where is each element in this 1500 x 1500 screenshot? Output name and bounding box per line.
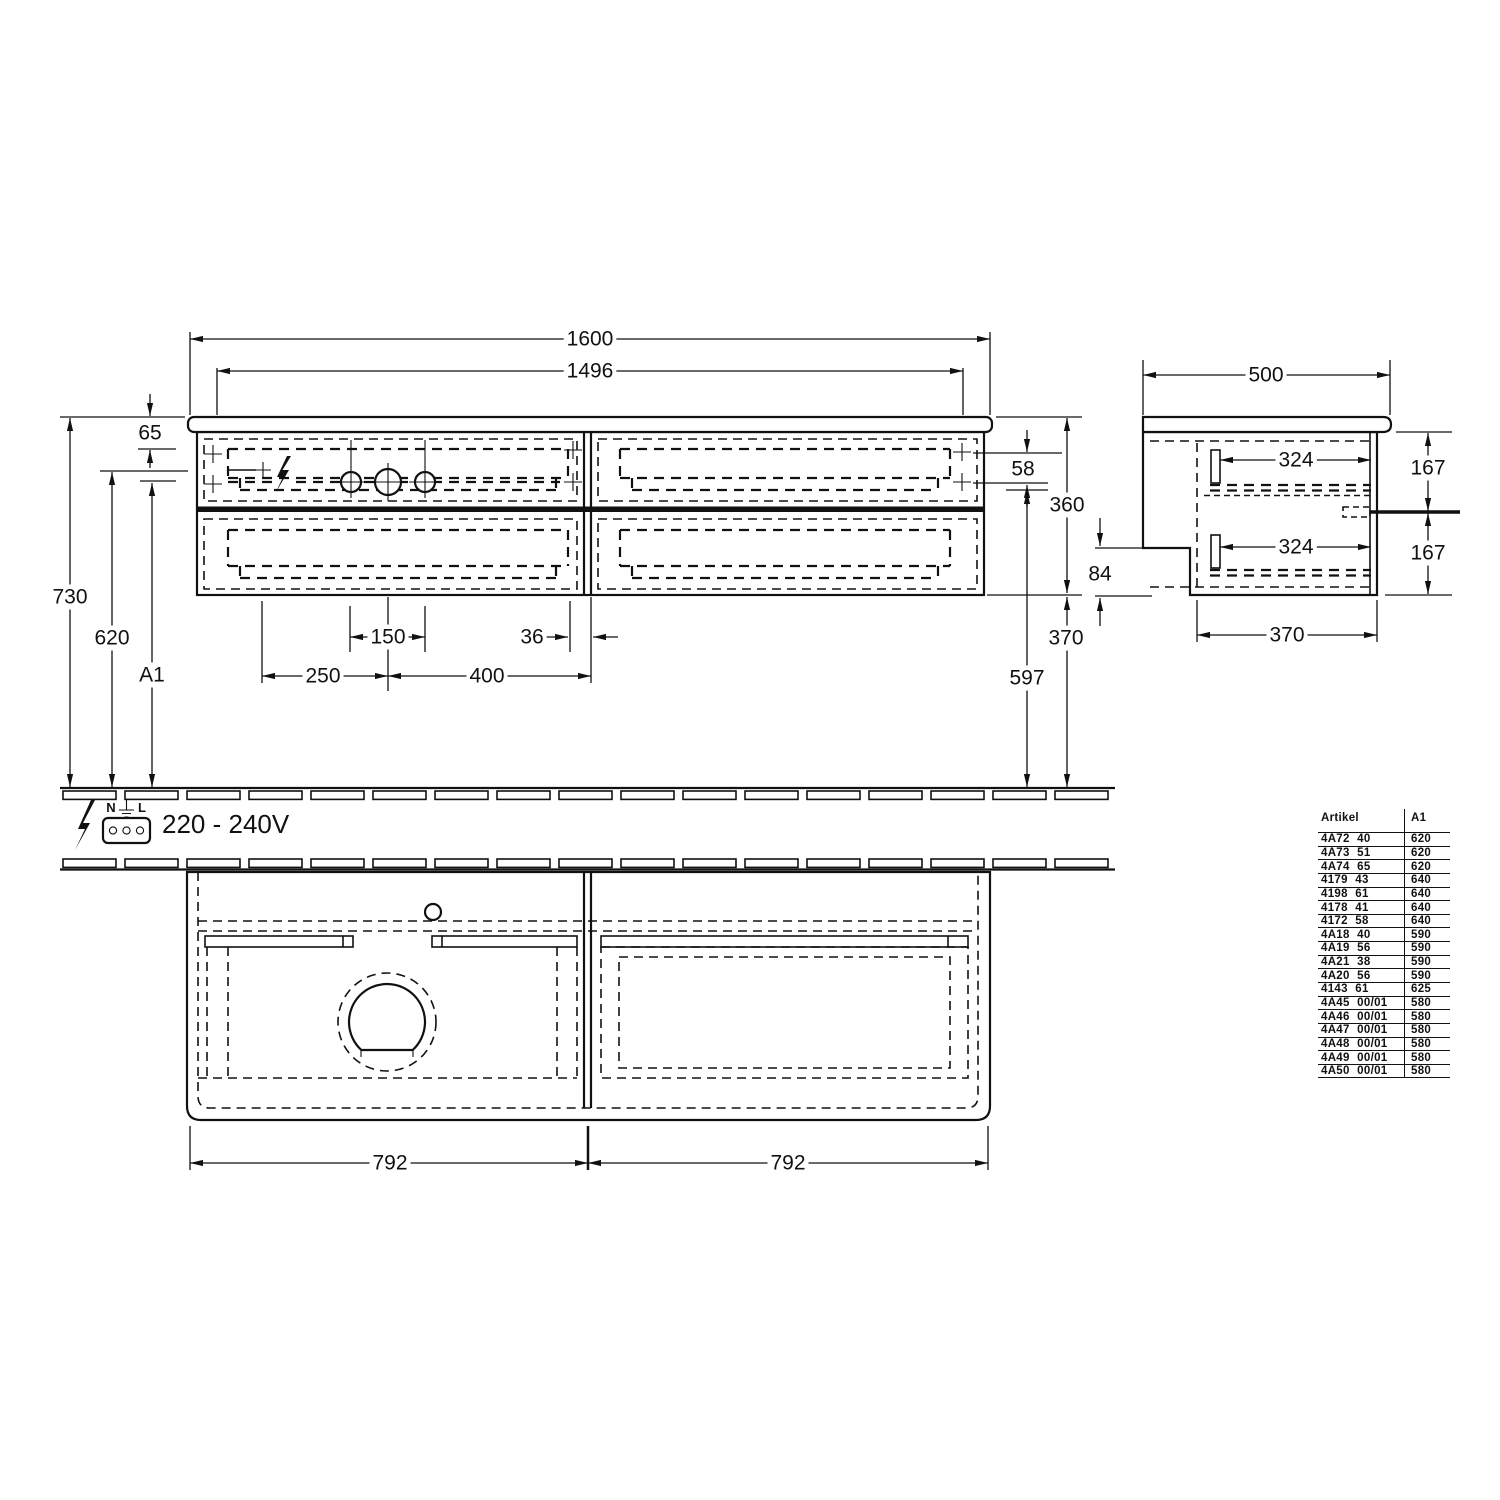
dim-drawer-lower: 167	[1410, 542, 1445, 565]
table-cell-article: 4A46 00/01	[1318, 1009, 1404, 1023]
table-cell-article: 4A47 00/01	[1318, 1023, 1404, 1037]
dim-notch-height: 84	[1088, 563, 1112, 586]
plan-dimensions: 792 792	[190, 1126, 988, 1176]
table-cell-article: 4178 41	[1318, 900, 1404, 914]
tap-holes	[335, 463, 441, 501]
table-cell-a1: 580	[1404, 1050, 1450, 1064]
table-cell-a1: 590	[1404, 955, 1450, 969]
table-cell-a1: 620	[1404, 832, 1450, 846]
table-cell-a1: 640	[1404, 914, 1450, 928]
dim-inner-width: 1496	[567, 360, 614, 383]
table-cell-article: 4A19 56	[1318, 941, 1404, 955]
table-cell-a1: 620	[1404, 859, 1450, 873]
lightning-bolt-icon	[75, 800, 95, 850]
table-cell-article: 4A45 00/01	[1318, 996, 1404, 1010]
wall-hatch-line	[60, 858, 1115, 870]
table-cell-article: 4A74 65	[1318, 859, 1404, 873]
table-cell-article: 4A18 40	[1318, 927, 1404, 941]
table-cell-article: 4179 43	[1318, 873, 1404, 887]
table-cell-article: 4A48 00/01	[1318, 1037, 1404, 1051]
technical-drawing-canvas: 1600 1496 65 730 620 A1 58 360 370 597 1…	[0, 0, 1500, 1500]
dim-body-height: 360	[1049, 494, 1084, 517]
table-cell-a1: 640	[1404, 900, 1450, 914]
drawer-rail-top	[1211, 450, 1220, 483]
table-cell-a1: 620	[1404, 846, 1450, 860]
table-cell-a1: 580	[1404, 1023, 1450, 1037]
dim-outlet-height: 620	[94, 627, 129, 650]
table-cell-article: 4172 58	[1318, 914, 1404, 928]
table-cell-article: 4A73 51	[1318, 846, 1404, 860]
table-cell-article: 4143 61	[1318, 982, 1404, 996]
voltage-label: 220 - 240V	[162, 809, 290, 839]
dim-hole-edge: 36	[520, 626, 543, 649]
table-header-a1: A1	[1404, 809, 1450, 832]
table-cell-article: 4198 61	[1318, 887, 1404, 901]
terminal-n-label: N	[106, 800, 115, 815]
table-cell-article: 4A21 38	[1318, 955, 1404, 969]
article-table: Artikel A1 4A72 40620 4A73 51620 4A74 65…	[1318, 809, 1450, 1078]
countertop-side	[1143, 417, 1391, 432]
dim-bottom-depth: 370	[1269, 624, 1304, 647]
dim-left-half: 792	[372, 1152, 407, 1175]
side-view	[1143, 417, 1460, 595]
table-cell-a1: 590	[1404, 968, 1450, 982]
terminal-l-label: L	[138, 800, 146, 815]
dim-hole-span: 400	[469, 665, 504, 688]
table-cell-article: 4A50 00/01	[1318, 1064, 1404, 1078]
electrical-connection: N L 220 - 240V	[75, 799, 290, 850]
dim-clearance-below: 370	[1048, 627, 1083, 650]
table-cell-article: 4A72 40	[1318, 832, 1404, 846]
table-header-artikel: Artikel	[1318, 809, 1404, 832]
dim-hole-left: 250	[305, 665, 340, 688]
plan-view	[187, 872, 990, 1120]
dim-variable-height: A1	[139, 664, 165, 687]
table-cell-a1: 580	[1404, 1064, 1450, 1078]
table-cell-article: 4A20 56	[1318, 968, 1404, 982]
dim-hole-pitch: 150	[370, 626, 405, 649]
table-cell-a1: 625	[1404, 982, 1450, 996]
table-cell-a1: 590	[1404, 927, 1450, 941]
dim-rail-top: 324	[1278, 449, 1313, 472]
table-cell-a1: 640	[1404, 873, 1450, 887]
dim-drain-height: 597	[1009, 667, 1044, 690]
basin-outline	[349, 984, 425, 1050]
table-cell-a1: 590	[1404, 941, 1450, 955]
dim-top-offset: 65	[138, 422, 161, 445]
faucet-hole	[425, 904, 441, 920]
front-view	[188, 417, 992, 595]
drawer-rail-bottom	[1211, 535, 1220, 568]
dim-depth: 500	[1248, 364, 1283, 387]
dim-drawer-gap: 58	[1011, 458, 1034, 481]
table-cell-a1: 580	[1404, 996, 1450, 1010]
technical-drawing-page: 1600 1496 65 730 620 A1 58 360 370 597 1…	[0, 0, 1500, 1500]
countertop-plan	[187, 872, 990, 1120]
dim-drawer-upper: 167	[1410, 457, 1445, 480]
table-cell-a1: 580	[1404, 1037, 1450, 1051]
countertop-front	[188, 417, 992, 432]
table-cell-article: 4A49 00/01	[1318, 1050, 1404, 1064]
ground-icon	[119, 799, 134, 817]
dim-rail-bottom: 324	[1278, 536, 1313, 559]
dim-right-half: 792	[770, 1152, 805, 1175]
table-cell-a1: 580	[1404, 1009, 1450, 1023]
dim-total-height: 730	[52, 586, 87, 609]
table-cell-a1: 640	[1404, 887, 1450, 901]
floor-hatch-line	[60, 788, 1115, 801]
dim-overall-width: 1600	[567, 328, 614, 351]
